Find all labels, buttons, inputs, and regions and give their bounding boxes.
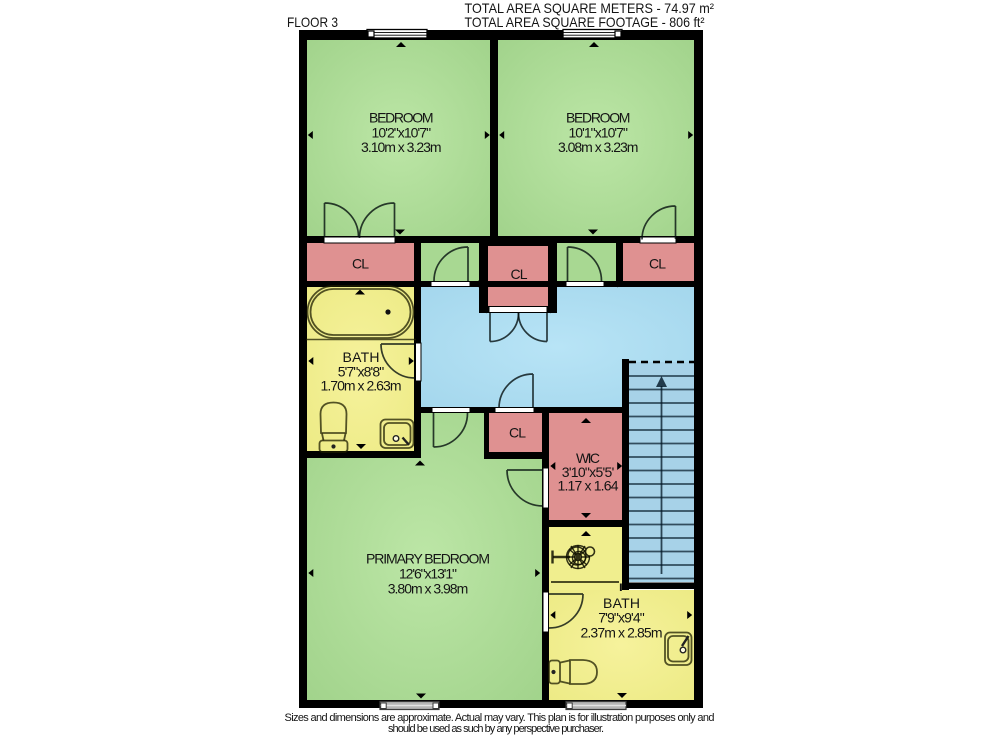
svg-text:1.70m x 2.63m: 1.70m x 2.63m (321, 378, 402, 394)
svg-text:1.17 x 1.64: 1.17 x 1.64 (558, 478, 619, 494)
svg-text:12'6"x13'1": 12'6"x13'1" (399, 566, 457, 582)
svg-text:CL: CL (511, 266, 528, 282)
svg-text:FLOOR 3: FLOOR 3 (287, 14, 338, 30)
svg-text:2.37m x 2.85m: 2.37m x 2.85m (581, 625, 663, 641)
svg-text:PRIMARY BEDROOM: PRIMARY BEDROOM (366, 551, 490, 567)
svg-text:3.80m x 3.98m: 3.80m x 3.98m (388, 581, 469, 597)
svg-text:TOTAL AREA SQUARE FOOTAGE - 80: TOTAL AREA SQUARE FOOTAGE - 806 ft² (465, 14, 705, 30)
svg-text:CL: CL (509, 425, 526, 441)
svg-text:CL: CL (352, 255, 369, 271)
svg-text:3.08m x 3.23m: 3.08m x 3.23m (558, 139, 639, 155)
svg-text:CL: CL (649, 255, 666, 271)
svg-text:should be used as such by any: should be used as such by any perspectiv… (388, 723, 604, 735)
svg-text:BEDROOM: BEDROOM (369, 109, 434, 125)
svg-text:3.10m x 3.23m: 3.10m x 3.23m (361, 139, 442, 155)
svg-text:7'9"x9'4": 7'9"x9'4" (598, 610, 645, 626)
svg-text:BEDROOM: BEDROOM (566, 109, 631, 125)
